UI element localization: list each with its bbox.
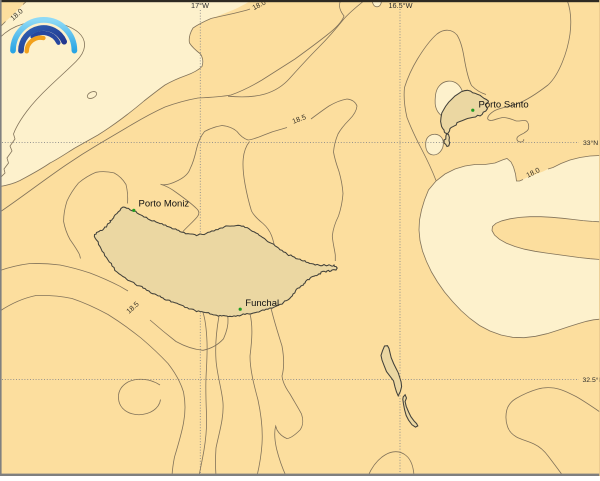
svg-text:33°N: 33°N: [583, 139, 598, 147]
svg-text:16.5°W: 16.5°W: [388, 1, 412, 10]
svg-text:Porto Santo: Porto Santo: [479, 100, 529, 111]
svg-text:Porto Moniz: Porto Moniz: [139, 198, 190, 209]
svg-text:Funchal: Funchal: [245, 298, 279, 309]
svg-text:32.5°N: 32.5°N: [583, 376, 600, 384]
svg-text:17°W: 17°W: [191, 1, 209, 10]
